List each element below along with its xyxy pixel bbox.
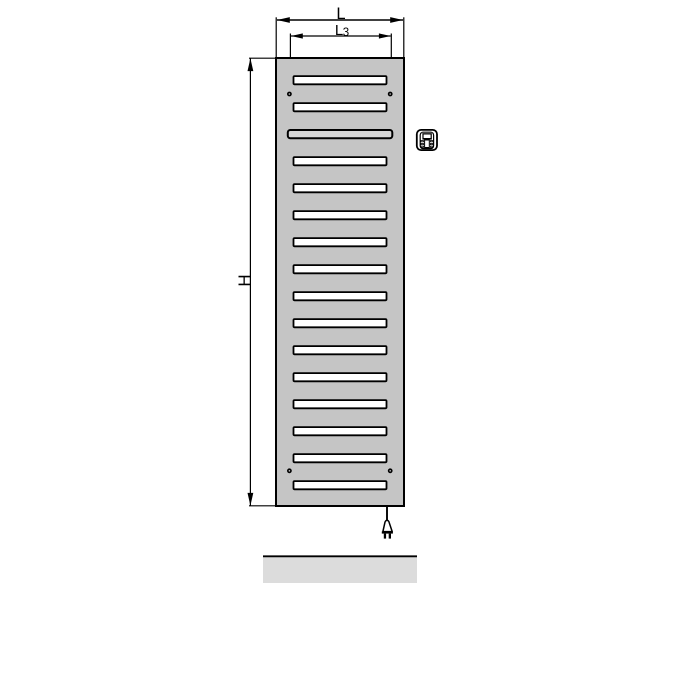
svg-text:L: L [336, 5, 345, 23]
svg-text:3: 3 [343, 27, 349, 39]
svg-text:H: H [235, 274, 254, 286]
